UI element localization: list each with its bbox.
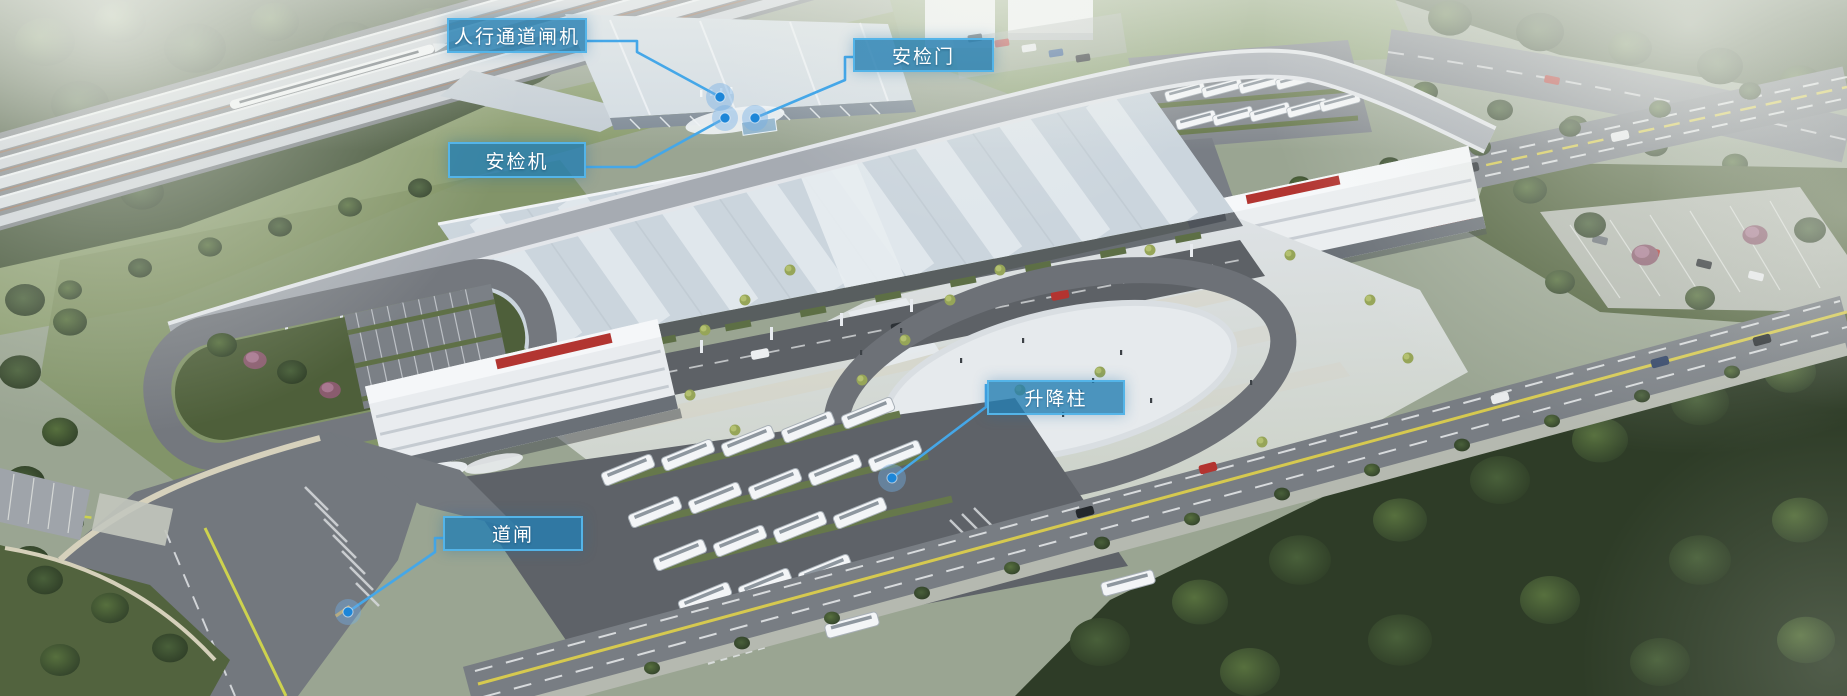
callout-label: 人行通道闸机 [454, 22, 580, 49]
callout-label: 升降柱 [1024, 384, 1087, 411]
callout-pedestrian-turnstile[interactable]: 人行通道闸机 [447, 18, 587, 53]
callout-security-scanner[interactable]: 安检机 [448, 142, 586, 178]
callout-lifting-bollard[interactable]: 升降柱 [987, 380, 1125, 415]
callout-barrier-gate[interactable]: 道闸 [443, 516, 583, 551]
station-aerial-page: 人行通道闸机 安检门 安检机 升降柱 道闸 [0, 0, 1847, 696]
callout-label: 道闸 [492, 520, 534, 547]
station-aerial-illustration [0, 0, 1847, 696]
callout-label: 安检机 [485, 147, 548, 174]
callout-label: 安检门 [892, 42, 955, 69]
callout-security-gate[interactable]: 安检门 [853, 38, 994, 72]
